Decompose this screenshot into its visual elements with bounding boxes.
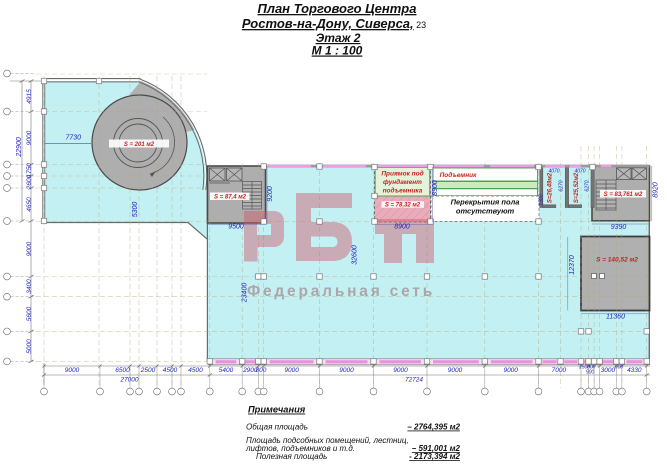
svg-text:4650: 4650: [26, 197, 33, 212]
svg-text:М 1 : 100: М 1 : 100: [312, 44, 363, 58]
svg-text:800: 800: [256, 367, 267, 374]
svg-text:9000: 9000: [393, 367, 408, 374]
svg-text:S = 83,761 м2: S = 83,761 м2: [604, 192, 643, 198]
svg-text:План Торгового Центра: План Торгового Центра: [258, 1, 417, 16]
svg-text:5400: 5400: [219, 367, 234, 374]
svg-text:S=25,52м2: S=25,52м2: [574, 172, 580, 203]
svg-text:9390: 9390: [611, 224, 627, 231]
svg-text:4330: 4330: [627, 367, 642, 374]
svg-text:4500: 4500: [188, 367, 203, 374]
svg-text:S = 201 м2: S = 201 м2: [124, 142, 155, 148]
svg-text:9000: 9000: [284, 367, 299, 374]
svg-text:27000: 27000: [119, 377, 138, 384]
svg-text:отсутствуют: отсутствуют: [456, 207, 515, 216]
svg-text:9000: 9000: [503, 367, 518, 374]
svg-text:11360: 11360: [606, 314, 625, 321]
svg-text:9000: 9000: [339, 367, 354, 374]
svg-text:900: 900: [586, 370, 595, 376]
svg-text:2500: 2500: [140, 367, 156, 374]
svg-text:32600: 32600: [352, 245, 359, 265]
svg-text:7730: 7730: [66, 135, 82, 142]
svg-text:Федеральная сеть: Федеральная сеть: [247, 283, 435, 300]
svg-text:9200: 9200: [267, 186, 274, 202]
svg-text:Полезная площадь: Полезная площадь: [256, 452, 327, 461]
svg-text:4915: 4915: [26, 89, 33, 104]
svg-text:5300: 5300: [132, 202, 139, 218]
svg-text:– 2764,395 м2: – 2764,395 м2: [407, 423, 460, 432]
svg-text:5000: 5000: [26, 339, 33, 354]
svg-text:8900: 8900: [432, 180, 439, 196]
svg-text:22900: 22900: [16, 137, 23, 158]
svg-text:6270: 6270: [559, 180, 565, 191]
svg-text:6500: 6500: [115, 367, 130, 374]
svg-text:Приямок подфундаментподъемника: Приямок подфундаментподъемника: [381, 170, 423, 195]
svg-text:Ростов-на-Дону, Сиверса, 23: Ростов-на-Дону, Сиверса, 23: [242, 16, 426, 31]
svg-text:8900: 8900: [394, 224, 410, 231]
svg-text:8920: 8920: [653, 182, 660, 198]
svg-text:3000: 3000: [601, 367, 616, 374]
svg-text:S = 87,4 м2: S = 87,4 м2: [214, 195, 247, 201]
svg-text:7000: 7000: [552, 367, 567, 374]
svg-text:- 2173,394 м2: - 2173,394 м2: [409, 452, 460, 461]
svg-text:4500: 4500: [163, 367, 178, 374]
svg-text:Общая площадь: Общая площадь: [246, 423, 308, 432]
svg-text:S = 78,32 м2: S = 78,32 м2: [385, 203, 421, 209]
svg-text:S=26,49м2: S=26,49м2: [548, 172, 554, 203]
svg-text:3400: 3400: [26, 279, 33, 294]
svg-text:Перекрытия пола: Перекрытия пола: [451, 198, 520, 207]
svg-text:23400: 23400: [242, 283, 249, 304]
svg-text:Подъемник: Подъемник: [440, 171, 478, 179]
svg-text:9000: 9000: [65, 367, 80, 374]
svg-text:9500: 9500: [228, 224, 244, 231]
svg-text:6270: 6270: [585, 180, 591, 191]
svg-text:Примечания: Примечания: [248, 405, 306, 415]
svg-text:72724: 72724: [405, 377, 423, 384]
svg-text:12370: 12370: [569, 255, 576, 275]
svg-text:S = 140,52 м2: S = 140,52 м2: [596, 257, 638, 264]
svg-text:9000: 9000: [26, 130, 33, 145]
svg-text:9000: 9000: [26, 241, 33, 256]
svg-text:5600: 5600: [26, 306, 33, 321]
svg-text:1500: 1500: [539, 194, 545, 205]
svg-text:9000: 9000: [448, 367, 463, 374]
